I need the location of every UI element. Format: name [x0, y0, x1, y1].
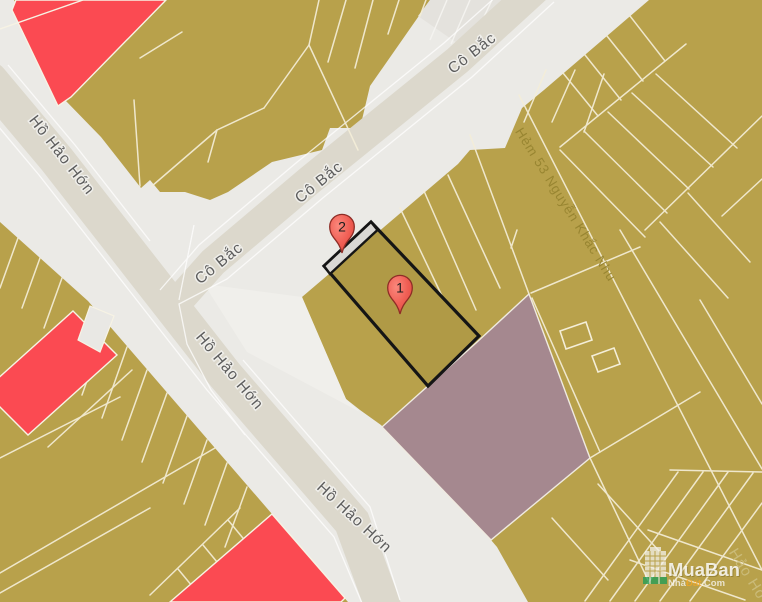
svg-text:MuaBan: MuaBan: [668, 559, 740, 580]
svg-text:NhàĐất.Com: NhàĐất.Com: [668, 578, 725, 589]
svg-text:2: 2: [338, 219, 346, 235]
svg-text:1: 1: [396, 280, 404, 296]
